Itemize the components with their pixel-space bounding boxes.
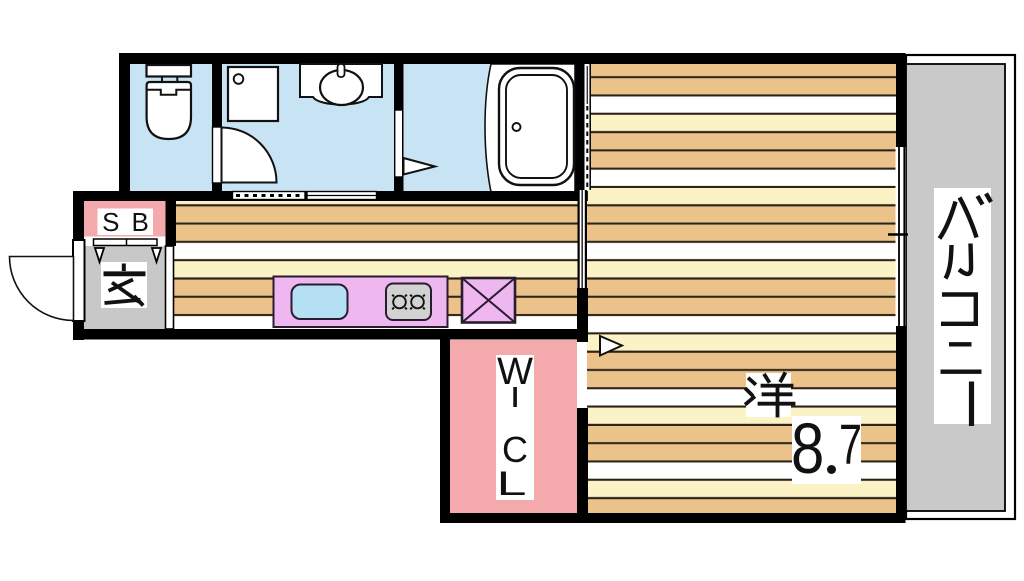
svg-text:L: L [497, 465, 527, 503]
svg-text:W: W [497, 351, 533, 393]
svg-text:SB: SB [102, 207, 161, 237]
svg-text:C: C [502, 429, 528, 470]
svg-text:8: 8 [791, 409, 824, 489]
svg-text:7: 7 [839, 413, 862, 477]
